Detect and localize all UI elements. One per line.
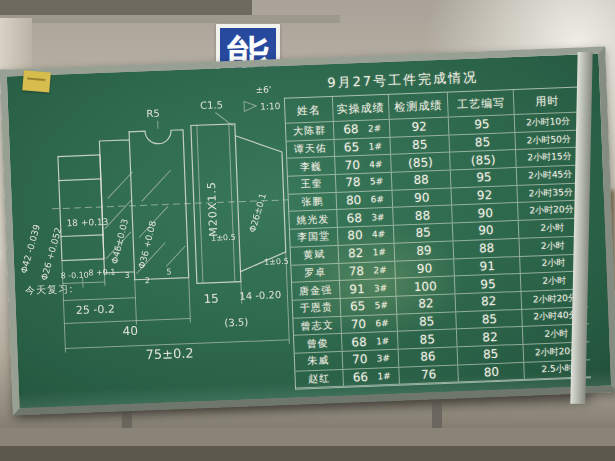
dim-label: 15: [203, 292, 219, 307]
cell-time: 2小时15分: [516, 148, 582, 167]
cell-name: 曾志文: [293, 316, 341, 335]
dim-label: 8 +0.1: [88, 267, 115, 277]
dim-label: 75±0.2: [145, 346, 194, 363]
cell-inspect: 90: [392, 188, 452, 207]
cell-process: 85: [458, 345, 524, 364]
dim-label: 25 -0.2: [76, 303, 115, 317]
cell-process: 91: [455, 256, 521, 275]
dim-label: 1±0.5: [264, 257, 289, 267]
cell-time: 2小时10分: [515, 112, 581, 131]
cell-process: 88: [454, 239, 520, 258]
cell-machine: 3#: [376, 350, 399, 368]
dim-label: 18 +0.13: [66, 217, 108, 229]
cell-name: 朱威: [295, 352, 343, 371]
cell-machine: 5#: [370, 173, 393, 191]
wall-pipe: [0, 15, 340, 23]
cell-inspect: 88: [393, 206, 453, 225]
cell-process: 95: [449, 115, 515, 134]
floor: [0, 428, 615, 448]
floor-edge: [0, 446, 615, 461]
header-time-used: 用时: [514, 88, 581, 115]
header-name: 姓名: [285, 97, 334, 123]
cell-score: 70: [335, 156, 370, 174]
dim-label: 1:10: [260, 101, 281, 112]
cell-name: 李国堂: [290, 228, 338, 247]
cell-process: 85: [450, 133, 516, 152]
cell-process: 92: [452, 186, 518, 205]
dim-label: 8 -0.10: [60, 270, 89, 280]
cell-inspect: 90: [395, 259, 455, 278]
cell-machine: 1#: [368, 138, 391, 156]
score-table: 9月27号工件完成情况 姓名 实操成绩 检测成绩 工艺编写 用时 大陈群682#…: [283, 65, 591, 390]
cell-time: 2小时50分: [516, 130, 582, 149]
chalkboard: R5 C1.5 ±6' 1:10 Φ42 -0.039 Φ26 +0.052 1…: [0, 46, 615, 415]
cell-score: 65: [340, 297, 375, 315]
dim-label: R5: [146, 108, 160, 120]
dim-label: 14 -0.20: [239, 289, 281, 302]
cell-inspect: 85: [390, 135, 450, 154]
header-inspect-score: 检测成绩: [388, 93, 449, 119]
cell-name: 张鹏: [289, 193, 337, 212]
photo-scene: 能: [0, 0, 615, 461]
cell-machine: 4#: [369, 155, 392, 173]
header-process-writing: 工艺编写: [448, 90, 515, 117]
cell-process: 82: [456, 292, 522, 311]
cell-machine: 2#: [373, 261, 396, 279]
cell-score: 65: [334, 138, 369, 156]
cell-inspect: (85): [391, 153, 451, 172]
cell-process: 95: [451, 168, 517, 187]
dim-label: Φ42 -0.039: [19, 223, 42, 274]
cell-name: 唐金强: [292, 281, 340, 300]
cell-score: 91: [340, 280, 375, 298]
cell-name: 黄斌: [291, 246, 339, 265]
chalk-technical-drawing: R5 C1.5 ±6' 1:10 Φ42 -0.039 Φ26 +0.052 1…: [9, 72, 299, 394]
cell-machine: 6#: [375, 314, 398, 332]
cell-score: 68: [334, 121, 369, 139]
cell-inspect: 85: [398, 330, 458, 349]
dim-label: Φ36 +0.08: [137, 220, 158, 270]
cell-score: 70: [343, 350, 378, 368]
cell-inspect: 85: [397, 312, 457, 331]
cell-inspect: 86: [398, 347, 458, 366]
dim-label: 5: [166, 267, 171, 276]
dim-label: 3: [124, 271, 129, 280]
dim-label: C1.5: [200, 99, 223, 111]
dim-label: 40: [122, 324, 138, 339]
dim-label: ±6': [255, 84, 271, 95]
table-grid: 姓名 实操成绩 检测成绩 工艺编写 用时 大陈群682#92952小时10分谭天…: [284, 87, 591, 390]
table-rows: 大陈群682#92952小时10分谭天佑651#85852小时50分李巍704#…: [286, 112, 591, 388]
cell-machine: 2#: [368, 120, 391, 138]
cell-name: 王奎: [288, 175, 336, 194]
cell-inspect: 89: [394, 241, 454, 260]
cell-name: 李巍: [287, 157, 335, 176]
cell-machine: 1#: [372, 244, 395, 262]
cell-machine: 5#: [374, 297, 397, 315]
cell-name: 于恩贵: [293, 299, 341, 318]
cell-process: 90: [453, 221, 519, 240]
cell-inspect: 92: [389, 118, 449, 137]
cell-machine: 4#: [372, 226, 395, 244]
cell-name: 大陈群: [286, 122, 334, 141]
cell-score: 68: [342, 333, 377, 351]
cell-score: 82: [338, 244, 373, 262]
cell-name: 姚光发: [289, 210, 337, 229]
dim-label: 2: [145, 276, 150, 285]
cell-score: 78: [336, 174, 371, 192]
review-note: 今天复习:: [25, 283, 74, 296]
cell-process: (85): [451, 150, 517, 169]
cell-time: 2小时45分: [517, 166, 583, 185]
cell-name: 曾俊: [294, 334, 342, 353]
dim-label: Φ46±0.03: [109, 218, 130, 265]
cell-name: 罗卓: [291, 263, 339, 282]
dim-label: Φ26±0.1: [247, 192, 268, 234]
cell-inspect: 82: [396, 294, 456, 313]
cell-score: 70: [341, 315, 376, 333]
cell-machine: 6#: [370, 191, 393, 209]
cell-machine: 1#: [376, 332, 399, 350]
dim-label: 1±0.5: [211, 233, 236, 243]
cell-score: 80: [336, 191, 371, 209]
cell-machine: 3#: [374, 279, 397, 297]
cell-process: 95: [455, 274, 521, 293]
cell-name: 谭天佑: [287, 140, 335, 159]
cell-machine: 3#: [371, 208, 394, 226]
cell-score: 80: [338, 227, 373, 245]
dim-label: (3.5): [224, 316, 248, 328]
cell-process: 85: [457, 309, 523, 328]
cell-process: 90: [453, 203, 519, 222]
cell-inspect: 100: [396, 277, 456, 296]
cell-score: 78: [339, 262, 374, 280]
header-practical-score: 实操成绩: [333, 95, 390, 121]
cell-inspect: 85: [394, 224, 454, 243]
cell-score: 68: [337, 209, 372, 227]
cell-inspect: 88: [391, 171, 451, 190]
cell-process: 82: [457, 327, 523, 346]
dim-label: M20X1.5: [205, 181, 220, 237]
ceiling-beam: [0, 0, 252, 15]
